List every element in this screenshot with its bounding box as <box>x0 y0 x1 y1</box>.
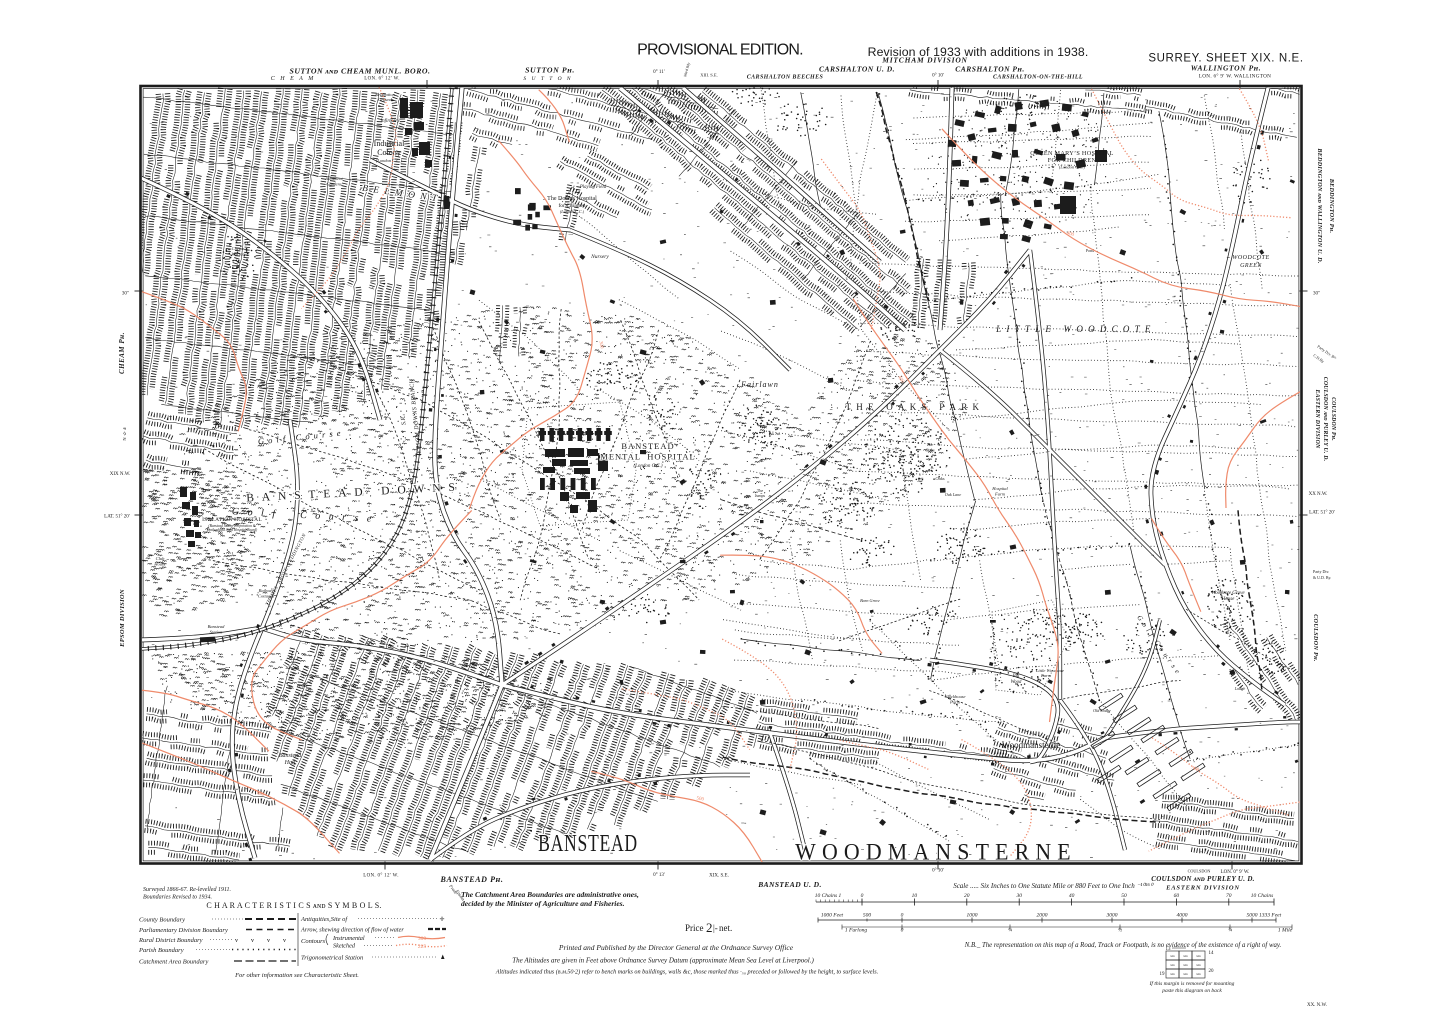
svg-text:If this margin is removed for: If this margin is removed for mounting <box>1149 980 1235 987</box>
svg-text:Jumps: Jumps <box>755 493 766 498</box>
svg-text:Leatherhead Joint Hospital Boa: Leatherhead Joint Hospital Board) <box>206 528 258 532</box>
svg-text:Trigonometrical Station: Trigonometrical Station <box>301 955 363 962</box>
svg-text:SUTTON ᴀɴᴅ CHEAM MUNL. BORO.: SUTTON ᴀɴᴅ CHEAM MUNL. BORO. <box>290 67 431 76</box>
svg-text:20: 20 <box>1209 969 1215 974</box>
svg-text:N.B._ The representation on th: N.B._ The representation on this map of … <box>964 942 1282 949</box>
svg-text:Infirmary: Infirmary <box>379 119 400 124</box>
svg-text:✛: ✛ <box>439 916 444 923</box>
svg-text:House: House <box>153 562 166 567</box>
svg-text:BANSTEAD Pʜ.: BANSTEAD Pʜ. <box>440 875 504 884</box>
svg-text:Contours: Contours <box>301 938 326 945</box>
svg-text:For other information see Char: For other information see Characteristic… <box>234 972 359 979</box>
svg-text:BEDDINGTON Pʜ.: BEDDINGTON Pʜ. <box>1328 178 1335 234</box>
svg-text:xix: xix <box>1196 954 1201 958</box>
svg-text:2: 2 <box>706 920 713 935</box>
svg-text:10 Chains: 10 Chains <box>1251 893 1273 899</box>
svg-text:0° 13′: 0° 13′ <box>653 873 665 878</box>
svg-text:0° 10′: 0° 10′ <box>932 869 944 874</box>
svg-text:Rural District Boundary: Rural District Boundary <box>138 937 203 944</box>
svg-text:13: 13 <box>1166 947 1172 952</box>
svg-text:xix: xix <box>1196 963 1201 967</box>
svg-text:G o l f C o u r s e: G o l f C o u r s e <box>257 428 342 447</box>
svg-text:v: v <box>235 938 238 944</box>
svg-text:Party Div.: Party Div. <box>1313 569 1329 574</box>
svg-text:(London C.C.): (London C.C.) <box>376 158 403 163</box>
svg-text:The: The <box>927 442 934 447</box>
svg-text:Surveyed 1866-67. Re-levelled: Surveyed 1866-67. Re-levelled 1911. <box>143 887 231 893</box>
svg-text:60: 60 <box>1174 893 1180 899</box>
svg-text:Instrumental: Instrumental <box>332 935 365 942</box>
svg-text:1000 Feet: 1000 Feet <box>821 913 844 919</box>
svg-text:Lodge: Lodge <box>1234 686 1246 691</box>
svg-text:30″: 30″ <box>1313 292 1320 297</box>
svg-text:BANSTEAD: BANSTEAD <box>621 441 674 451</box>
svg-text:xix: xix <box>1170 972 1175 976</box>
svg-text:B A N S T E A D D O W N S: B A N S T E A D D O W N S <box>246 481 458 504</box>
svg-text:20: 20 <box>964 893 970 899</box>
svg-text:Cheam: Cheam <box>232 246 245 251</box>
svg-text:Industrial: Industrial <box>374 139 405 148</box>
svg-text:CARSHALTON U. D.: CARSHALTON U. D. <box>819 65 895 74</box>
svg-text:COULSDON Pʜ.: COULSDON Pʜ. <box>1312 614 1319 662</box>
svg-text:Oaks: Oaks <box>925 448 934 453</box>
svg-text:MENTAL HOSPITAL: MENTAL HOSPITAL <box>600 452 695 462</box>
svg-text:FOR CHILDREN: FOR CHILDREN <box>1048 157 1097 164</box>
svg-text:Banstead: Banstead <box>279 753 302 759</box>
svg-text:Parish Boundary: Parish Boundary <box>138 947 184 954</box>
svg-text:S.R.: S.R. <box>401 415 408 425</box>
svg-text:10 Chains 1: 10 Chains 1 <box>815 893 842 899</box>
svg-text:Oaks: Oaks <box>935 476 944 481</box>
svg-text:& U.D. By.: & U.D. By. <box>1313 575 1331 580</box>
svg-text:C.D.By: C.D.By <box>1312 353 1325 364</box>
svg-text:10: 10 <box>912 893 918 899</box>
svg-text:300: 300 <box>597 341 603 350</box>
svg-text:Nursery: Nursery <box>590 254 609 260</box>
svg-text:Playing Field: Playing Field <box>579 185 607 190</box>
svg-text:v: v <box>283 938 286 944</box>
svg-text:XIII. S.E.: XIII. S.E. <box>700 73 718 78</box>
svg-text:S U T T O N: S U T T O N <box>523 76 572 82</box>
svg-text:LON. 6° 9′ W. WALLINGTON: LON. 6° 9′ W. WALLINGTON <box>1199 73 1271 80</box>
svg-text:Barn Grove: Barn Grove <box>860 598 880 603</box>
svg-text:xix: xix <box>1196 972 1201 976</box>
svg-text:Farm: Farm <box>994 492 1006 497</box>
svg-text:XIX N.W.: XIX N.W. <box>110 472 131 477</box>
svg-text:Fairlawn: Fairlawn <box>740 380 779 389</box>
svg-text:BANSTEAD: BANSTEAD <box>538 829 638 857</box>
svg-text:CARSHALTON Pʜ.: CARSHALTON Pʜ. <box>955 65 1024 74</box>
svg-text:XX N.W.: XX N.W. <box>1309 492 1328 497</box>
svg-text:Farm: Farm <box>949 700 961 705</box>
svg-text:WALLINGTON Pʜ.: WALLINGTON Pʜ. <box>1191 64 1261 73</box>
svg-text:Ward Bdy: Ward Bdy <box>683 62 691 78</box>
svg-text:Station: Station <box>210 630 224 635</box>
svg-text:COULSDON Pʜ.: COULSDON Pʜ. <box>1330 397 1336 441</box>
svg-text:3000: 3000 <box>1106 913 1118 919</box>
svg-text:LON. 6° 12′ W.: LON. 6° 12′ W. <box>364 77 400 82</box>
svg-text:decided by the Minister of Agr: decided by the Minister of Agriculture a… <box>461 899 625 908</box>
svg-text:L I T T L E W O O D C O T E: L I T T L E W O O D C O T E <box>995 324 1152 334</box>
svg-text:v: v <box>267 938 270 944</box>
svg-text:Hall: Hall <box>284 760 296 766</box>
svg-text:Banstead: Banstead <box>208 624 225 629</box>
svg-text:4000: 4000 <box>1177 912 1188 919</box>
svg-text:The Downs Hospital: The Downs Hospital <box>547 196 597 202</box>
svg-text:Altitudes indicated thus (ʙ.ᴍ.: Altitudes indicated thus (ʙ.ᴍ.50·2) refe… <box>495 969 878 976</box>
svg-text:1 Mile: 1 Mile <box>1278 928 1293 934</box>
svg-text:Scale ..... Six Inches to One: Scale ..... Six Inches to One Statute Mi… <box>953 882 1154 890</box>
svg-text:14: 14 <box>1209 951 1215 956</box>
svg-text:GREEN: GREEN <box>1240 263 1262 269</box>
svg-text:Clockhouse: Clockhouse <box>945 694 966 699</box>
svg-text:T H E O A K S P A R K: T H E O A K S P A R K <box>845 402 980 412</box>
svg-text:500: 500 <box>863 913 872 919</box>
svg-text:30: 30 <box>1015 893 1022 899</box>
svg-text:0° 11′: 0° 11′ <box>653 70 665 75</box>
svg-text:COULSDON ᴀɴᴅ PURLEY U. D.: COULSDON ᴀɴᴅ PURLEY U. D. <box>1322 377 1328 461</box>
svg-text:XX. N.W.: XX. N.W. <box>1307 1003 1327 1008</box>
svg-text:C H E A M: C H E A M <box>271 76 315 82</box>
svg-text:CARSHALTON BEECHES: CARSHALTON BEECHES <box>747 75 824 81</box>
svg-text:40: 40 <box>1069 892 1075 899</box>
svg-text:Antiquities,Site of: Antiquities,Site of <box>300 916 348 923</box>
svg-text:Ground: Ground <box>378 97 393 102</box>
svg-text:1333 Feet: 1333 Feet <box>1259 913 1282 919</box>
svg-text:xix: xix <box>1170 954 1175 958</box>
svg-text:Warren: Warren <box>231 252 245 257</box>
svg-text:SUTTON Pʜ.: SUTTON Pʜ. <box>525 66 575 75</box>
svg-text:WOODCOTE: WOODCOTE <box>1232 255 1269 261</box>
svg-text:(London C.C.): (London C.C.) <box>1059 165 1086 170</box>
svg-text:70: 70 <box>1226 893 1232 899</box>
svg-text:225: 225 <box>418 944 427 950</box>
svg-text:0° 10′: 0° 10′ <box>932 74 944 79</box>
svg-text:Hospital: Hospital <box>991 486 1008 491</box>
svg-text:MITCHAM DIVISION: MITCHAM DIVISION <box>881 56 968 65</box>
svg-text:LAT. 51° 20′: LAT. 51° 20′ <box>1309 511 1335 516</box>
svg-text:CARSHALTON-ON-THE-HILL: CARSHALTON-ON-THE-HILL <box>993 75 1083 81</box>
svg-text:Woodmansterne: Woodmansterne <box>1002 740 1060 750</box>
svg-text:1 Furlong: 1 Furlong <box>845 928 867 934</box>
svg-text:The Catchment Area Boundaries: The Catchment Area Boundaries are admini… <box>461 890 639 899</box>
svg-text:Colony: Colony <box>377 148 401 157</box>
svg-text:xix: xix <box>1183 954 1188 958</box>
svg-text:COULSDON ᴀɴᴅ PURLEY U. D.: COULSDON ᴀɴᴅ PURLEY U. D. <box>1151 875 1254 883</box>
svg-text:LON. 0° 12′ W.: LON. 0° 12′ W. <box>363 874 399 879</box>
svg-text:paste this diagram on back: paste this diagram on back <box>1161 988 1222 994</box>
svg-text:Oak Lane: Oak Lane <box>945 492 962 497</box>
svg-text:19: 19 <box>1160 972 1166 977</box>
svg-text:The Altitudes are given in Fee: The Altitudes are given in Feet above Or… <box>512 957 814 965</box>
svg-text:EASTERN DIVISION: EASTERN DIVISION <box>1314 388 1320 449</box>
svg-text:30″: 30″ <box>122 292 129 297</box>
svg-text:PROVISIONAL EDITION.: PROVISIONAL EDITION. <box>637 42 803 59</box>
svg-text:XIX. S.E.: XIX. S.E. <box>709 874 729 879</box>
svg-text:Wood: Wood <box>1011 680 1022 685</box>
svg-text:Catchment Area Boundary: Catchment Area Boundary <box>139 959 208 966</box>
svg-text:Arrow, shewing direction of fl: Arrow, shewing direction of flow of wate… <box>300 927 404 934</box>
svg-text:net.: net. <box>719 923 732 933</box>
svg-text:Sketched: Sketched <box>333 943 356 950</box>
svg-text:BANSTEAD U. D.: BANSTEAD U. D. <box>757 880 822 889</box>
svg-text:House: House <box>1221 597 1236 602</box>
svg-text:BEDDINGTON ᴀɴᴅ WALLINGTON U.: BEDDINGTON ᴀɴᴅ WALLINGTON U. D. <box>1316 147 1323 263</box>
svg-text:EPSOM DIVISION: EPSOM DIVISION <box>119 589 126 648</box>
svg-text:0: 0 <box>861 893 864 899</box>
svg-text:Parliamentary Division Boundar: Parliamentary Division Boundary <box>138 927 228 934</box>
svg-text:for Children: for Children <box>558 202 585 209</box>
svg-text:|-: |- <box>713 923 718 933</box>
svg-text:WOODMANSTERNE: WOODMANSTERNE <box>795 839 1077 865</box>
svg-text:xix: xix <box>1170 963 1175 967</box>
svg-text:xix: xix <box>1183 972 1188 976</box>
svg-text:Woodcote Grove: Woodcote Grove <box>1211 591 1245 596</box>
svg-text:Printed and Published by the D: Printed and Published by the Director Ge… <box>558 943 794 952</box>
svg-text:CHEAM Pʜ.: CHEAM Pʜ. <box>118 332 126 374</box>
svg-text:Club: Club <box>156 556 166 561</box>
svg-text:Price: Price <box>685 923 704 933</box>
svg-text:County Boundary: County Boundary <box>139 917 185 924</box>
svg-text:Allotment: Allotment <box>324 176 343 181</box>
svg-text:LAT. 51° 20′: LAT. 51° 20′ <box>104 515 130 520</box>
svg-text:(London C.C.): (London C.C.) <box>560 209 585 214</box>
svg-text:QUEEN MARY’S HOSPITAL: QUEEN MARY’S HOSPITAL <box>1030 150 1114 157</box>
svg-text:Big: Big <box>1013 674 1020 679</box>
svg-text:300: 300 <box>418 936 427 942</box>
svg-text:v: v <box>251 938 254 944</box>
svg-text:Gardens: Gardens <box>326 182 342 187</box>
svg-text:xix: xix <box>1183 963 1188 967</box>
svg-text:(London C.C.): (London C.C.) <box>633 464 662 469</box>
svg-text:50: 50 <box>1121 893 1127 899</box>
svg-text:EASTERN DIVISION: EASTERN DIVISION <box>1165 885 1240 892</box>
svg-text:COULSDON: COULSDON <box>1188 869 1211 874</box>
svg-text:Boundaries Revised to 1934.: Boundaries Revised to 1934. <box>143 894 212 901</box>
svg-text:500: 500 <box>1191 766 1200 773</box>
svg-text:N ·𝑜· 𝑠: N ·𝑜· 𝑠 <box>122 427 127 441</box>
svg-text:C H A R A C T E R I S T I C S: C H A R A C T E R I S T I C S ᴀɴᴅ S Y M … <box>206 901 381 910</box>
